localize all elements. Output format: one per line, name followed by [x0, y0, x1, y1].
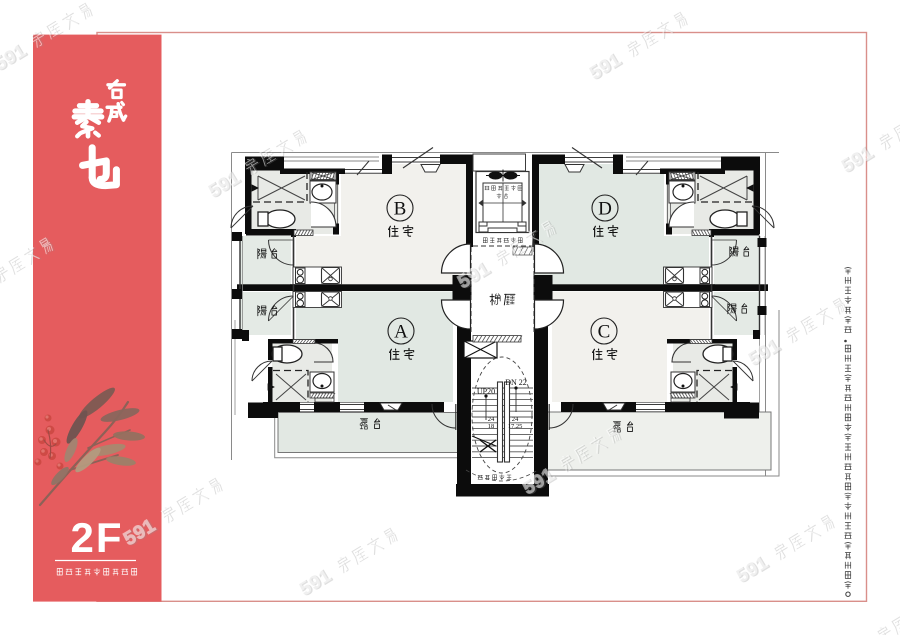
svg-text:18: 18: [488, 423, 495, 430]
svg-text:A: A: [394, 322, 408, 343]
svg-text:D: D: [598, 199, 612, 220]
svg-text:17.25: 17.25: [508, 423, 523, 430]
svg-text:24: 24: [488, 416, 495, 423]
svg-text:DN 22: DN 22: [505, 378, 527, 387]
svg-text:2F: 2F: [70, 514, 123, 561]
svg-text:C: C: [598, 322, 611, 343]
svg-text:24: 24: [512, 416, 519, 423]
svg-text:B: B: [394, 199, 407, 220]
